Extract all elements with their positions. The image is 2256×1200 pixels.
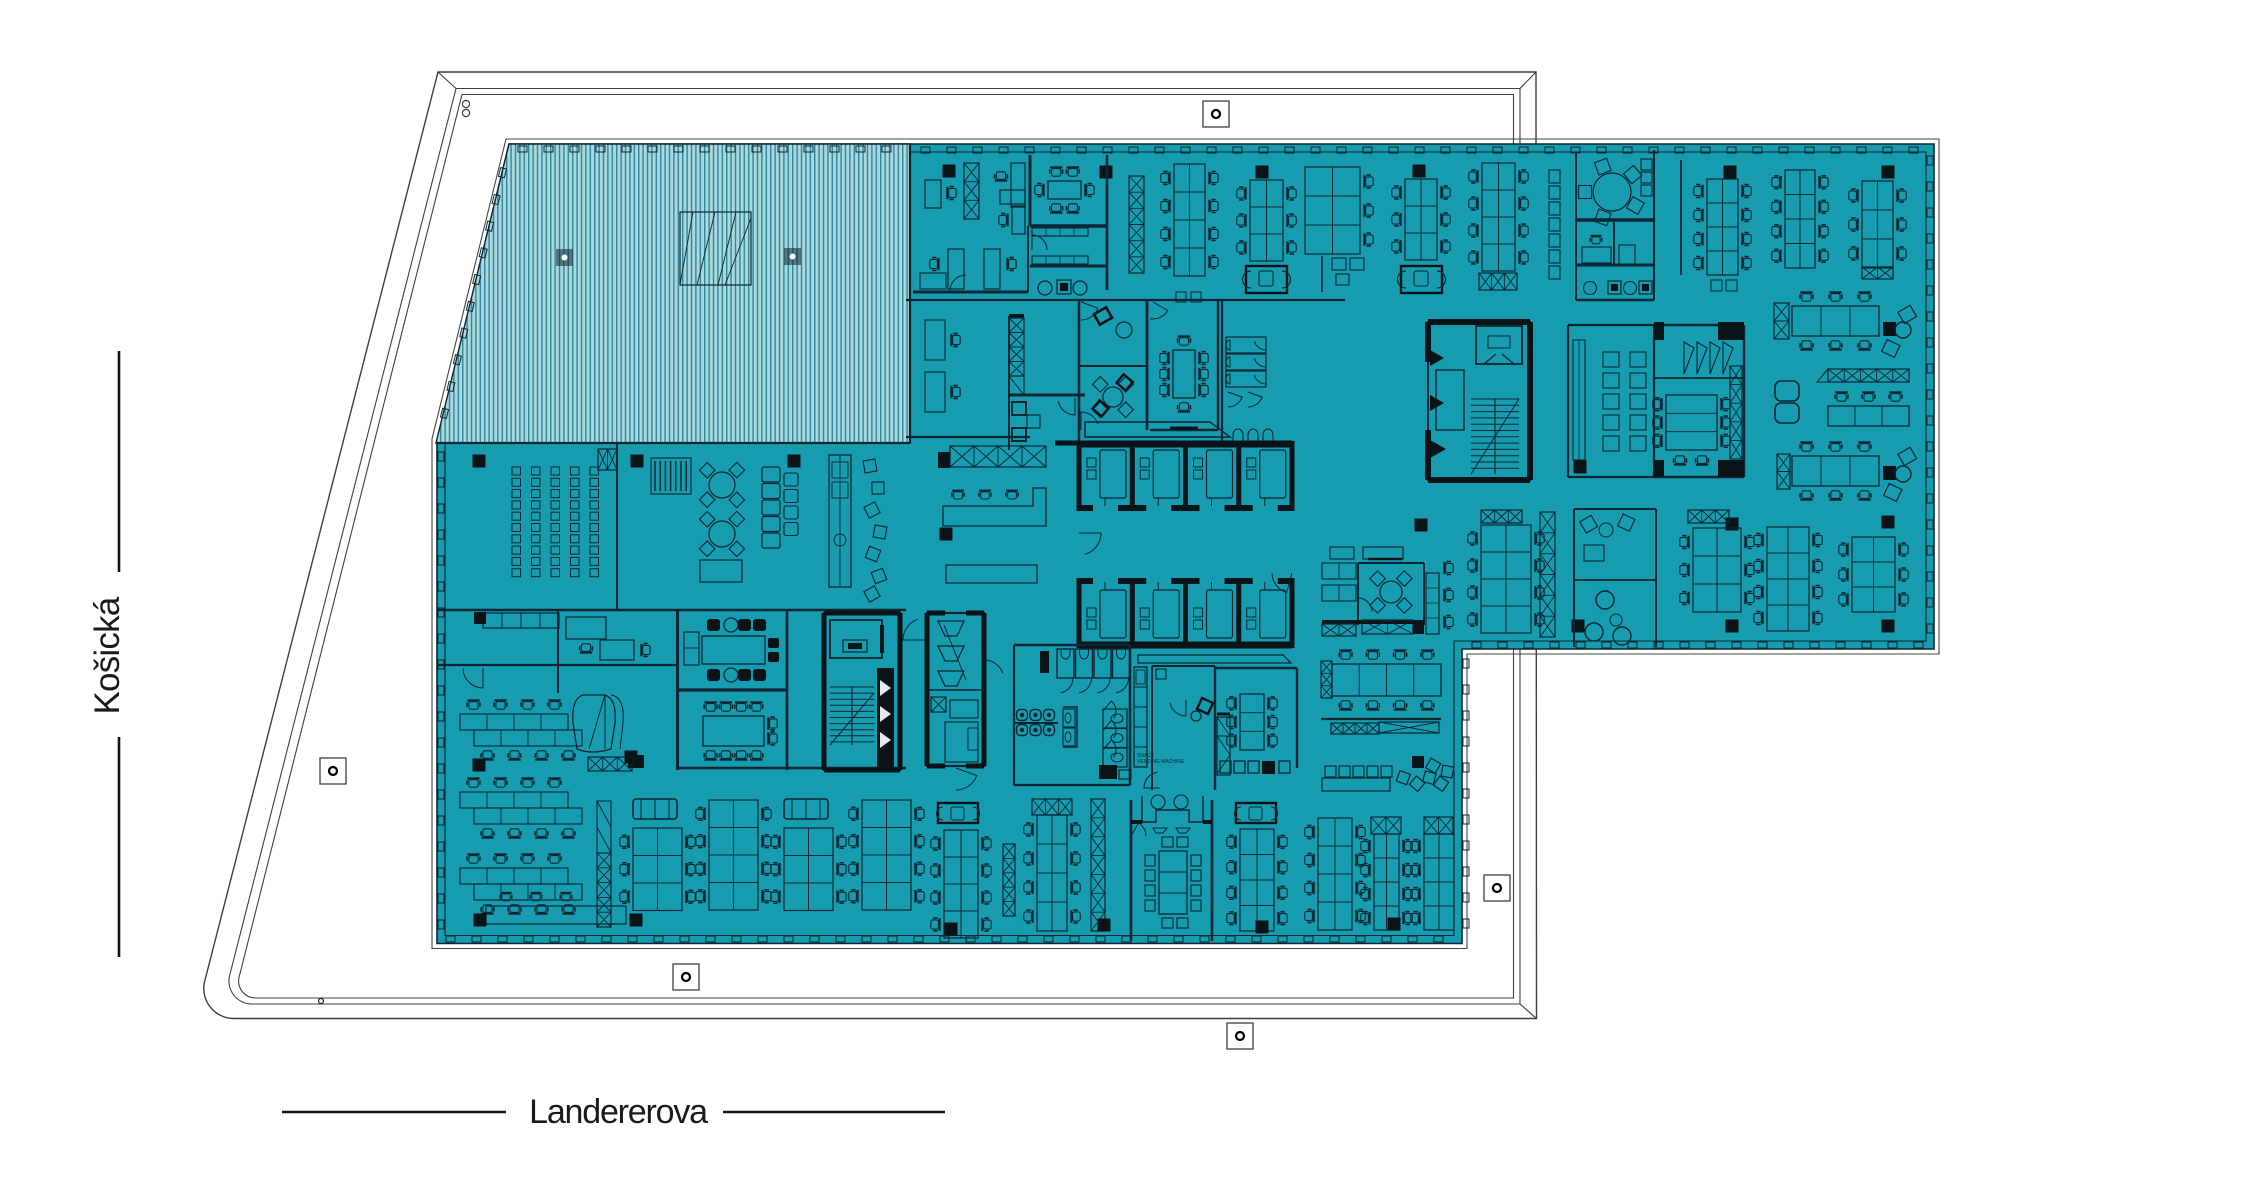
svg-text:Košická: Košická (88, 596, 127, 714)
svg-text:VENDING MACHINE: VENDING MACHINE (1137, 759, 1185, 765)
svg-text:Landererova: Landererova (529, 1093, 708, 1131)
